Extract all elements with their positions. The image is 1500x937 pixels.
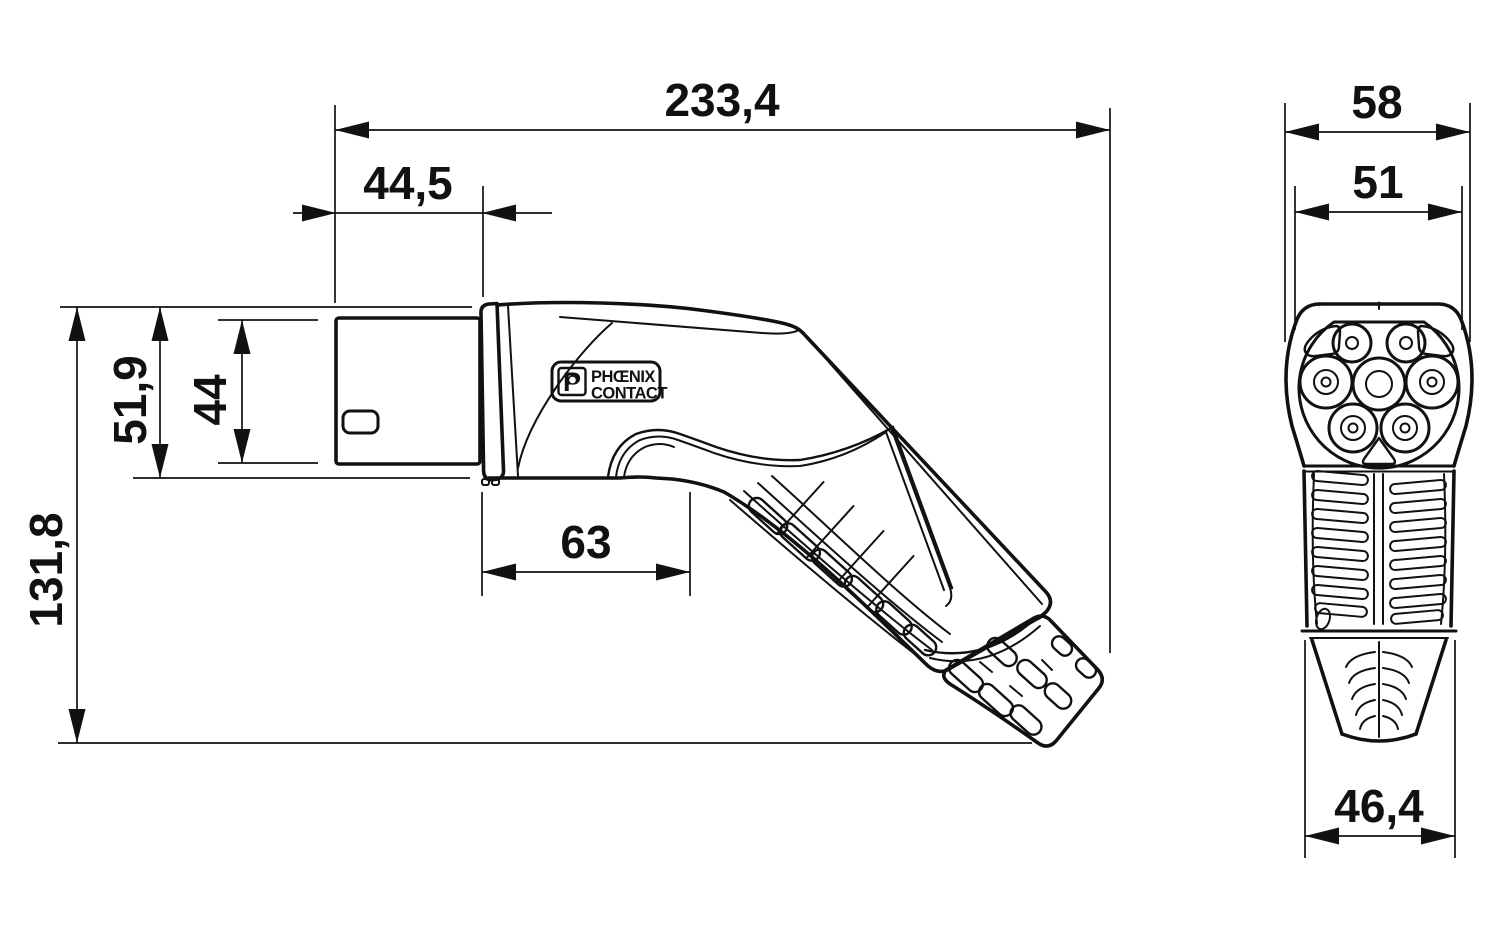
relief-rung xyxy=(1010,686,1022,696)
dim-overall-width: 58 xyxy=(1285,76,1470,141)
opening-arc xyxy=(616,432,886,477)
grip-rib-right xyxy=(1390,518,1447,533)
pin-dot xyxy=(1428,378,1437,387)
dim-label-face-length: 44,5 xyxy=(363,157,453,209)
dim-label-gland-width: 46,4 xyxy=(1334,780,1424,832)
gland-rib-right xyxy=(1383,684,1406,699)
side-view-strain-relief xyxy=(944,616,1103,746)
pin-ring xyxy=(1393,416,1417,440)
arrowhead-left xyxy=(1285,124,1319,141)
grip-rib-left xyxy=(1312,547,1369,562)
arrowhead-down xyxy=(234,429,251,463)
pin-outer xyxy=(1353,358,1405,410)
front-view-face xyxy=(1286,303,1472,469)
dim-face-width: 51 xyxy=(1295,156,1462,221)
dim-label-overall-length: 233,4 xyxy=(664,74,780,126)
arrowhead-up xyxy=(69,307,86,341)
relief-slot xyxy=(1073,655,1099,680)
grip-rib-right xyxy=(1390,480,1447,495)
collar-foot xyxy=(482,479,489,485)
dim-gland-width: 46,4 xyxy=(1305,780,1455,845)
contact-pin-mid-right xyxy=(1406,356,1458,408)
contact-pin-center xyxy=(1353,358,1405,410)
pin-dot xyxy=(1401,424,1410,433)
dim-face-length: 44,5 xyxy=(293,157,552,222)
contact-pin-bottom-left xyxy=(1329,404,1377,452)
relief-slot xyxy=(1049,633,1075,658)
logo-brand-top: PHŒNIX xyxy=(591,368,655,386)
pin-outer xyxy=(1381,404,1429,452)
arrowhead-down xyxy=(69,709,86,743)
grip-band-right-boundary xyxy=(886,432,944,590)
pin-outer xyxy=(1300,356,1352,408)
contact-pin-bottom-right xyxy=(1381,404,1429,452)
gland-side-right xyxy=(1416,640,1446,734)
side-view-housing xyxy=(489,303,1051,672)
dim-front-height: 51,9 xyxy=(104,307,169,478)
nozzle-latch-detail xyxy=(343,411,378,433)
arrowhead-right xyxy=(1076,122,1110,139)
grip-band-right-boundary xyxy=(893,427,952,588)
housing-inner-slope-line xyxy=(806,336,1042,604)
arrowhead-up xyxy=(234,320,251,354)
contact-pin-mid-left xyxy=(1300,356,1352,408)
grip-rib-right xyxy=(1390,575,1447,590)
arrowhead-right xyxy=(1436,124,1470,141)
logo-brand-bottom: CONTACT xyxy=(591,385,667,403)
dim-label-front-height: 51,9 xyxy=(104,355,156,445)
grip-ridge-line xyxy=(744,491,932,650)
pin-inner xyxy=(1400,337,1412,349)
side-view-collar xyxy=(481,304,518,486)
arrowhead-down xyxy=(152,444,169,478)
relief-rung xyxy=(980,662,992,672)
dim-label-overall-height: 131,8 xyxy=(20,512,72,627)
pin-ring xyxy=(1366,371,1392,397)
gland-rib-left xyxy=(1356,700,1375,715)
front-view-cable-gland xyxy=(1302,631,1456,741)
pin-ring xyxy=(1341,416,1365,440)
ev-connector-dimension-drawing: 233,4 44,5 51,9 44 131,8 xyxy=(0,0,1500,937)
front-view-grip xyxy=(1304,466,1454,631)
grip-side-right xyxy=(1451,471,1454,626)
grip-rib-right xyxy=(1391,610,1444,624)
face-guide-triangle xyxy=(1363,438,1395,464)
pin-inner xyxy=(1346,337,1358,349)
arrowhead-left xyxy=(482,564,516,581)
gland-rib-left xyxy=(1352,684,1375,699)
dim-face-height: 44 xyxy=(184,320,251,463)
side-view-grip-texture xyxy=(730,476,950,659)
pin-outer xyxy=(1406,356,1458,408)
grip-rib-right xyxy=(1390,556,1447,571)
phoenix-contact-logo: P PHŒNIX CONTACT xyxy=(552,362,667,403)
gland-rib-right xyxy=(1383,716,1398,729)
grip-rib-right xyxy=(1390,594,1447,609)
gland-rib-right xyxy=(1383,652,1412,667)
pin-ring xyxy=(1420,370,1444,394)
grip-rib-left xyxy=(1312,566,1369,581)
arrowhead-left xyxy=(1295,204,1329,221)
grip-rib-left xyxy=(1312,585,1369,600)
relief-slot xyxy=(1041,680,1074,712)
pin-outer xyxy=(1329,404,1377,452)
gland-rib-right xyxy=(1383,668,1409,683)
grip-slot xyxy=(746,495,791,538)
nozzle-outline xyxy=(336,318,480,464)
dim-grip-length: 63 xyxy=(482,516,690,581)
dim-label-face-height: 44 xyxy=(184,374,236,426)
arrowhead-right xyxy=(1428,204,1462,221)
face-inner-outline xyxy=(1299,322,1459,468)
front-view: 58 51 46,4 xyxy=(1285,76,1472,858)
grip-rib-left xyxy=(1312,509,1369,524)
pin-dot xyxy=(1349,424,1358,433)
side-view: 233,4 44,5 51,9 44 131,8 xyxy=(20,74,1110,746)
arrowhead-left xyxy=(335,122,369,139)
collar-outline xyxy=(481,304,504,480)
arrowhead-left xyxy=(302,205,336,222)
pin-dot xyxy=(1322,378,1331,387)
gland-rib-left xyxy=(1360,716,1375,729)
relief-rung xyxy=(1042,660,1052,670)
arrowhead-right xyxy=(1421,828,1455,845)
panel-bottom-edge xyxy=(890,425,951,606)
dim-label-overall-width: 58 xyxy=(1351,76,1402,128)
grip-rib-left xyxy=(1312,528,1369,543)
logo-p-dot xyxy=(569,376,577,384)
collar-inner-line xyxy=(508,306,518,476)
arrowhead-right xyxy=(656,564,690,581)
dim-overall-length: 233,4 xyxy=(335,74,1110,139)
gland-rib-right xyxy=(1383,700,1402,715)
housing-underside xyxy=(489,477,1040,671)
technical-drawing-page: 233,4 44,5 51,9 44 131,8 xyxy=(0,0,1500,937)
grip-rib-left xyxy=(1312,471,1369,486)
gland-side-left xyxy=(1312,640,1342,734)
gland-rib-left xyxy=(1346,652,1375,667)
gland-rib-left xyxy=(1349,668,1375,683)
opening-arc xyxy=(624,444,674,477)
grip-rib-left xyxy=(1312,490,1369,505)
dim-label-face-width: 51 xyxy=(1352,156,1403,208)
pin-ring xyxy=(1314,370,1338,394)
dim-label-grip-length: 63 xyxy=(560,516,611,568)
grip-side-left xyxy=(1304,471,1307,626)
arrowhead-right xyxy=(482,205,516,222)
side-view-plug-nozzle xyxy=(336,318,480,464)
grip-rib-right xyxy=(1390,499,1447,514)
grip-rib-right xyxy=(1390,537,1447,552)
arrowhead-up xyxy=(152,307,169,341)
collar-foot xyxy=(492,479,499,485)
dim-overall-height: 131,8 xyxy=(20,307,86,743)
